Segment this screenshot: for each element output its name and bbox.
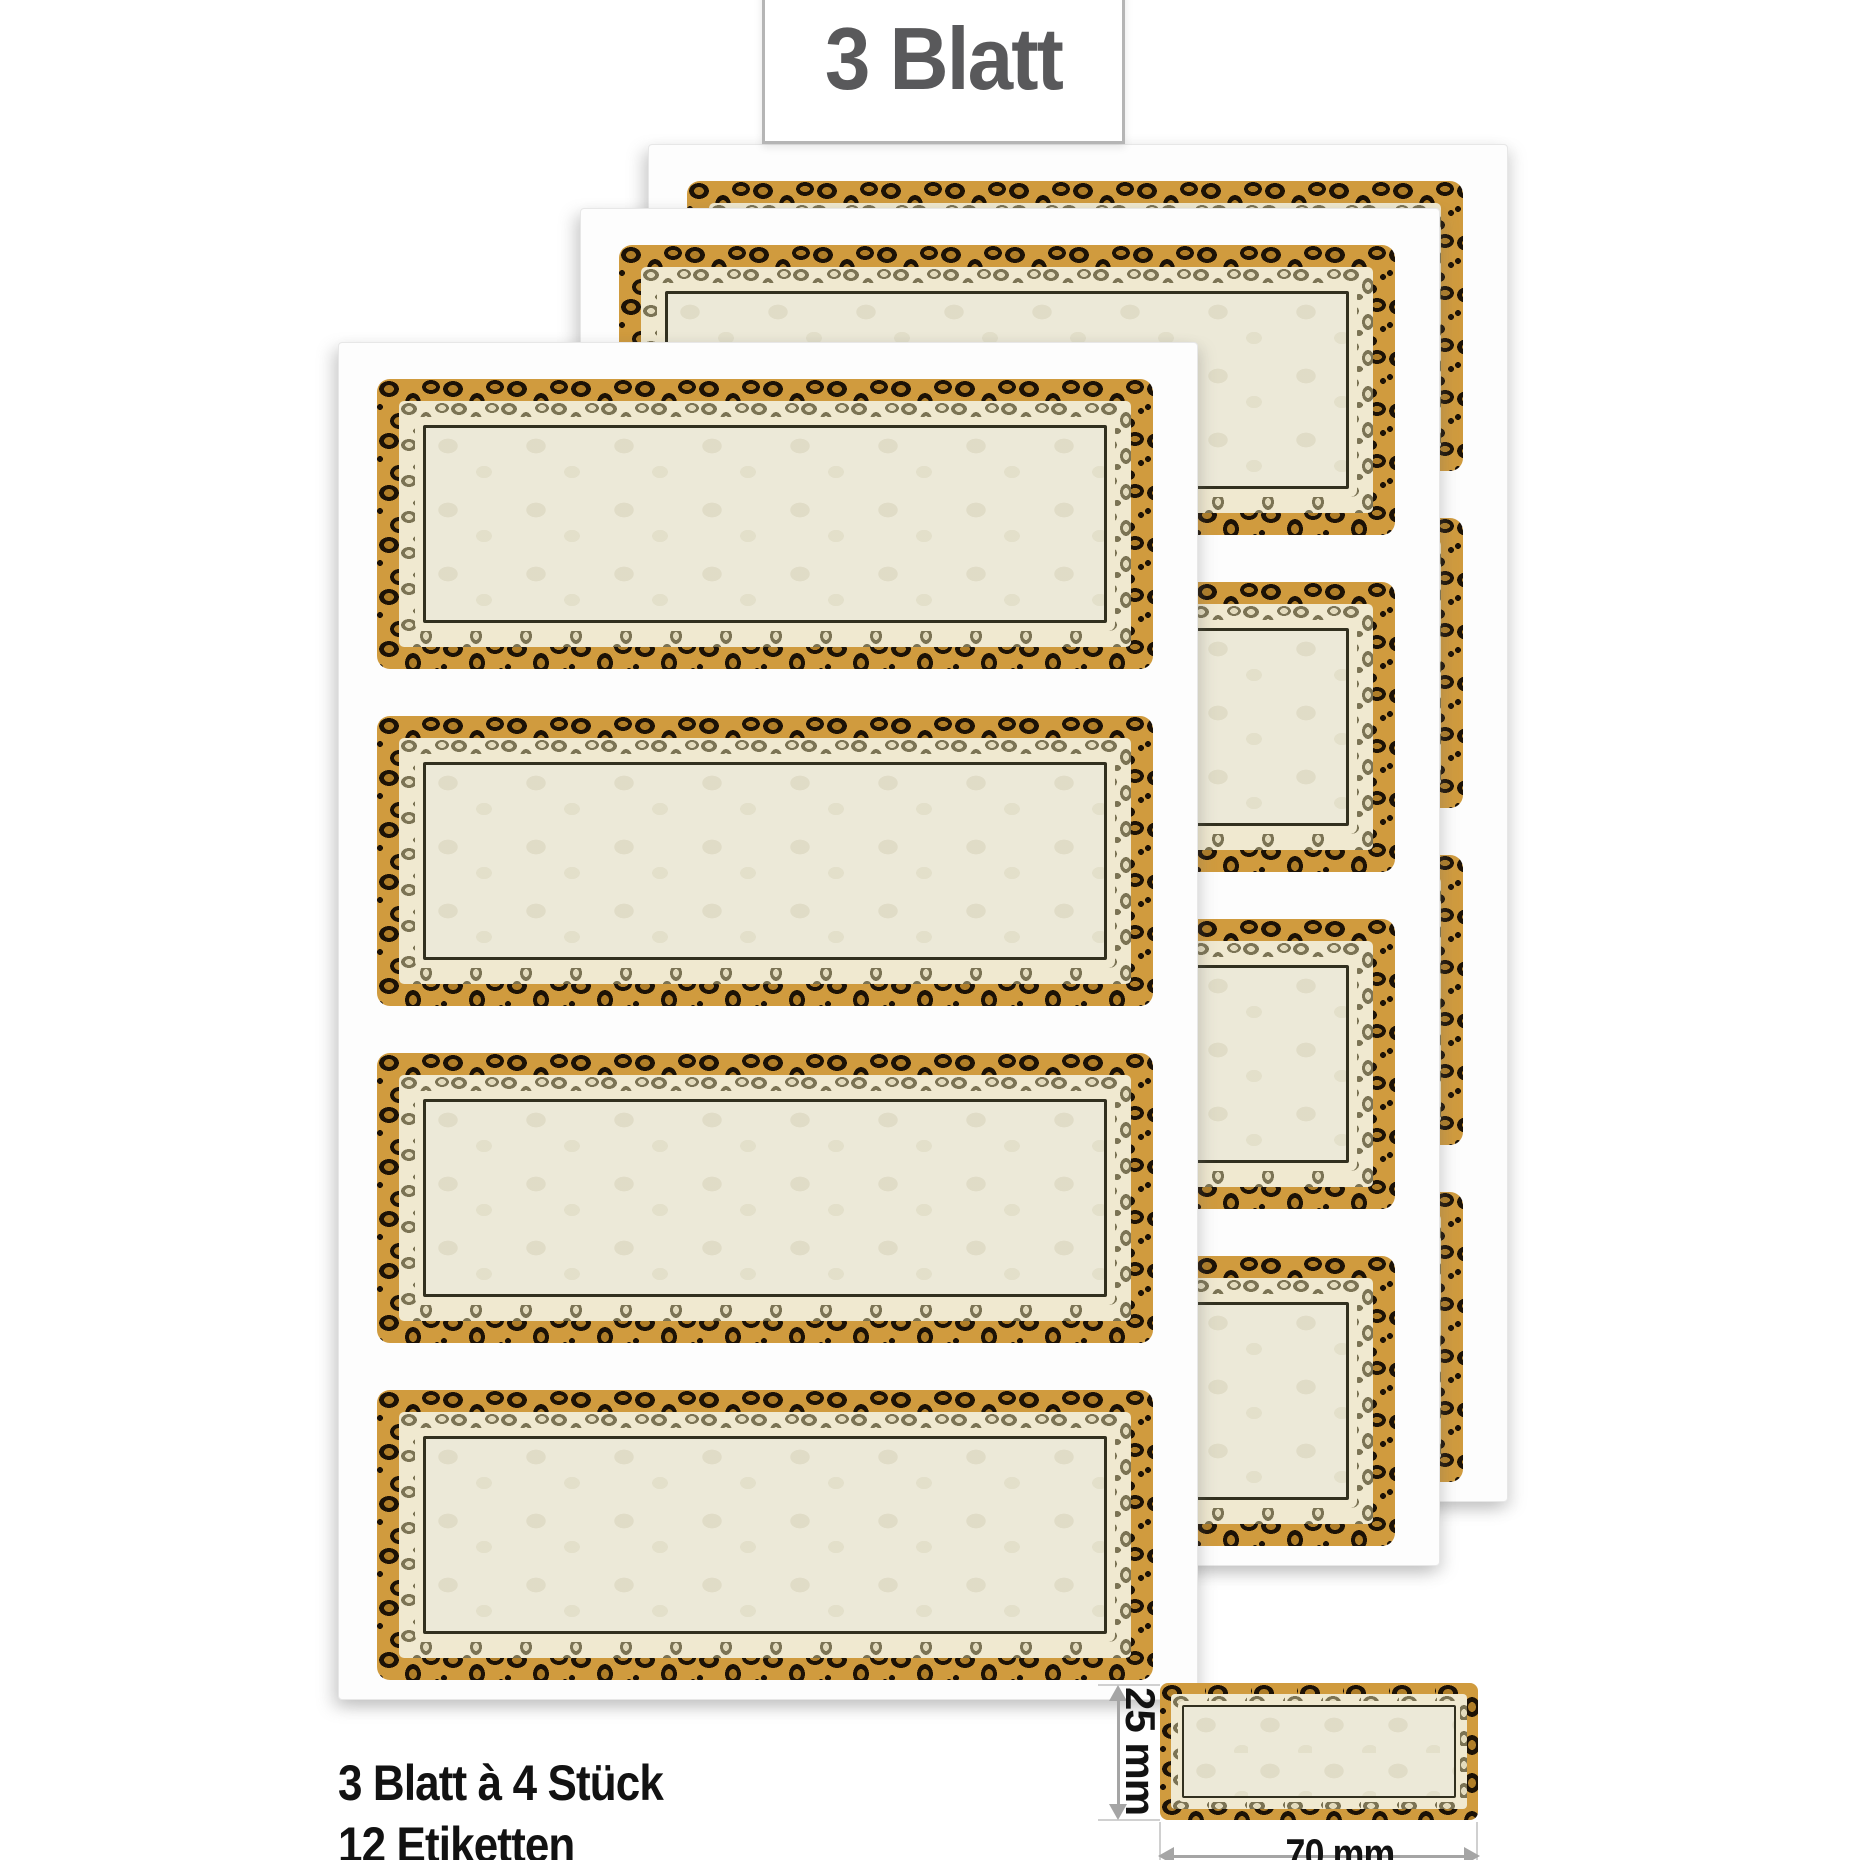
label-face: [423, 762, 1107, 960]
address-label: [377, 379, 1153, 669]
arrowhead-right-icon: [1464, 1847, 1480, 1860]
label-face: [423, 1099, 1107, 1297]
labels-count-text: 12 Etiketten: [338, 1814, 663, 1860]
quantity-badge-text: 3 Blatt: [825, 8, 1062, 110]
quantity-badge: 3 Blatt: [762, 0, 1125, 144]
leopard-inner-band: [1171, 1694, 1467, 1809]
leopard-inner-band: [399, 1412, 1131, 1658]
address-label: [377, 716, 1153, 1006]
product-summary: 3 Blatt à 4 Stück 12 Etiketten: [338, 1752, 707, 1860]
label-sheet-front: [338, 342, 1198, 1700]
label-face: [423, 425, 1107, 623]
arrowhead-left-icon: [1158, 1847, 1174, 1860]
leopard-inner-band: [399, 1075, 1131, 1321]
dimension-sample-label: [1160, 1683, 1478, 1820]
product-image-stage: 3 Blatt 25 mm 70 mm 3 Blatt à 4 Stück 12…: [0, 0, 1860, 1860]
label-face: [1182, 1705, 1456, 1798]
leopard-inner-band: [399, 738, 1131, 984]
leopard-inner-band: [399, 401, 1131, 647]
address-label: [377, 1053, 1153, 1343]
sheets-count-text: 3 Blatt à 4 Stück: [338, 1752, 663, 1814]
width-dimension-label: 70 mm: [1255, 1830, 1425, 1860]
label-face: [423, 1436, 1107, 1634]
height-dimension-label: 25 mm: [1118, 1683, 1162, 1820]
address-label: [377, 1390, 1153, 1680]
